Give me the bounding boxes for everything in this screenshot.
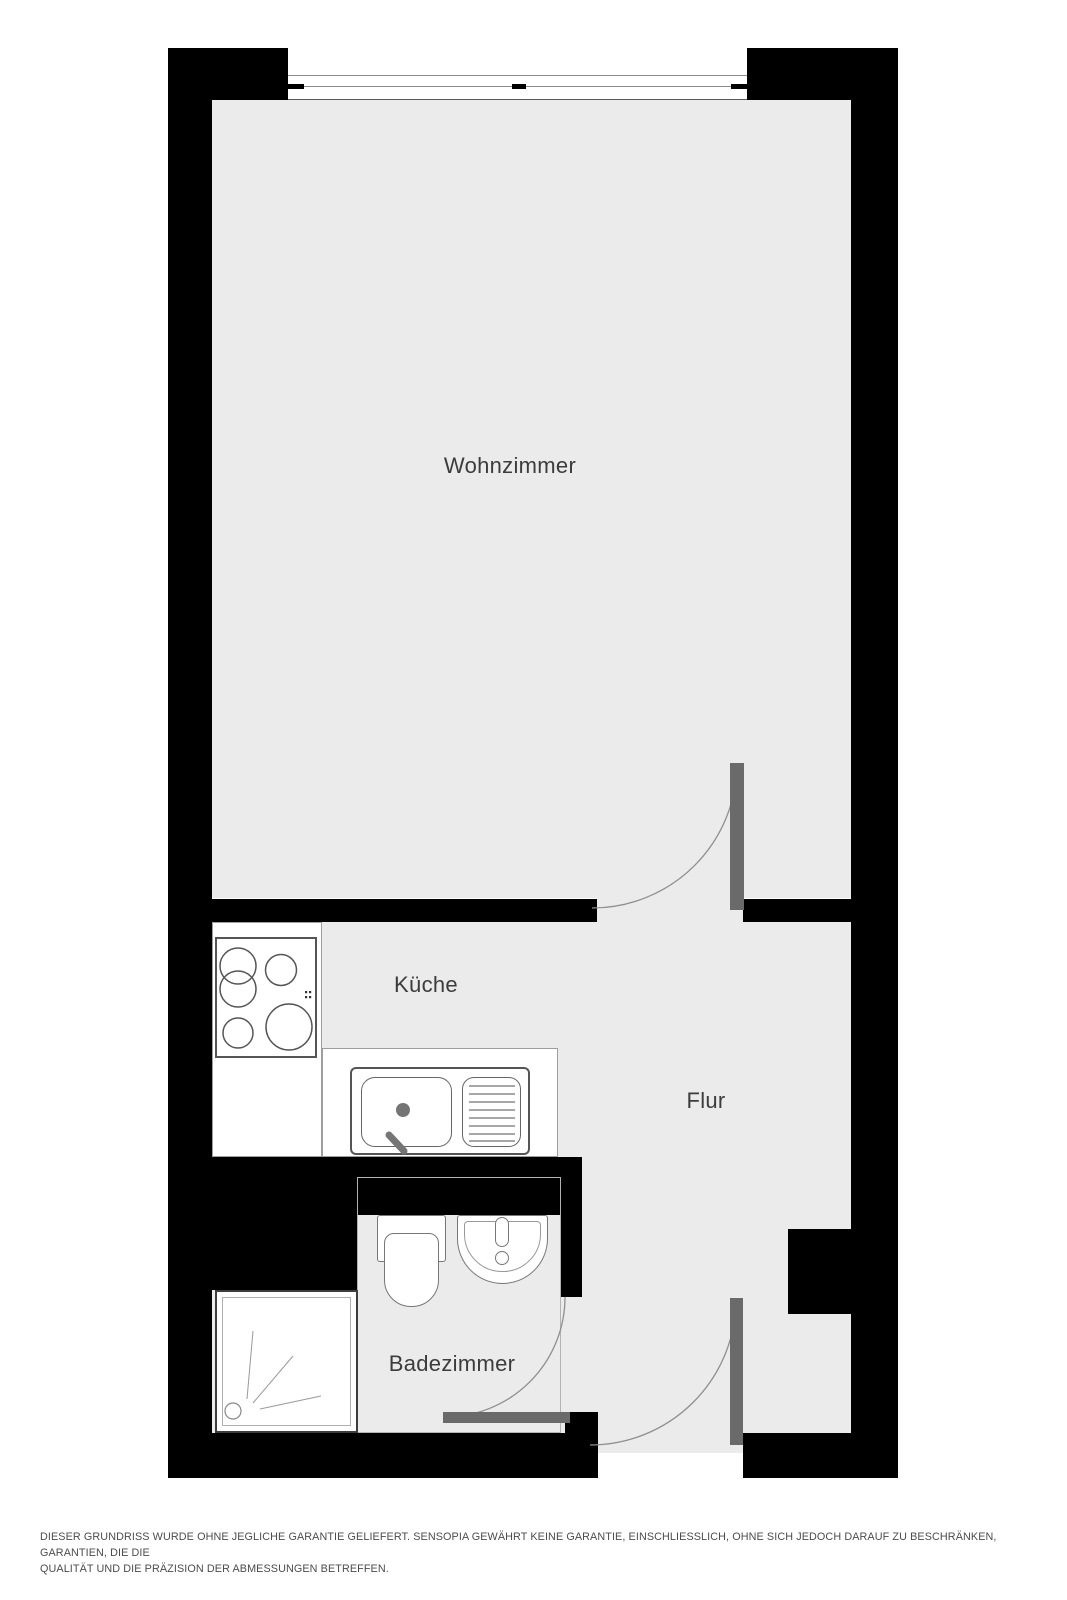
- wall-bottom-left: [168, 1433, 598, 1478]
- badezimmer-door-leaf: [443, 1412, 570, 1423]
- bathroom-faucet-knob: [495, 1251, 509, 1265]
- bathroom-faucet-base: [495, 1217, 509, 1247]
- disclaimer-text: DIESER GRUNDRISS WURDE OHNE JEGLICHE GAR…: [40, 1529, 1040, 1578]
- room-label-badezimmer: Badezimmer: [389, 1351, 515, 1377]
- window-tick-left: [288, 84, 304, 89]
- wall-bottom-right: [743, 1433, 898, 1478]
- wall-top-right-block: [747, 48, 898, 100]
- floor-entry-threshold: [598, 1433, 743, 1453]
- floor-doorway-wohnzimmer: [597, 898, 743, 922]
- wall-bathroom-right-column: [560, 1157, 582, 1297]
- wall-bathroom-left-mass: [212, 1180, 358, 1290]
- wall-right-outer: [851, 100, 898, 1478]
- window-tick-right: [731, 84, 747, 89]
- wall-wohnzimmer-left-segment: [212, 899, 597, 922]
- room-label-wohnzimmer: Wohnzimmer: [444, 453, 576, 479]
- window-tick-center: [512, 84, 526, 89]
- entry-door-leaf: [730, 1298, 743, 1445]
- disclaimer-line-2: QUALITÄT UND DIE PRÄZISION DER ABMESSUNG…: [40, 1561, 1040, 1577]
- kitchen-sink-drainer: [462, 1077, 521, 1147]
- floorplan-page: Wohnzimmer Küche Flur Badezimmer DIESER …: [0, 0, 1067, 1600]
- toilet-bowl-icon: [384, 1233, 439, 1307]
- wall-left-outer: [168, 48, 212, 1478]
- shower-tray-inner-line: [222, 1297, 351, 1426]
- floor-wohnzimmer: [212, 100, 851, 898]
- disclaimer-line-1: DIESER GRUNDRISS WURDE OHNE JEGLICHE GAR…: [40, 1529, 1040, 1561]
- wall-wohnzimmer-right-segment: [743, 899, 851, 922]
- wall-flur-pillar: [788, 1229, 852, 1314]
- kitchen-sink-bowl: [361, 1077, 452, 1147]
- room-label-flur: Flur: [686, 1088, 725, 1114]
- stove-icon: [215, 937, 317, 1058]
- wohnzimmer-door-leaf: [730, 763, 744, 910]
- wall-top-left-block: [168, 48, 288, 100]
- room-label-kueche: Küche: [394, 972, 458, 998]
